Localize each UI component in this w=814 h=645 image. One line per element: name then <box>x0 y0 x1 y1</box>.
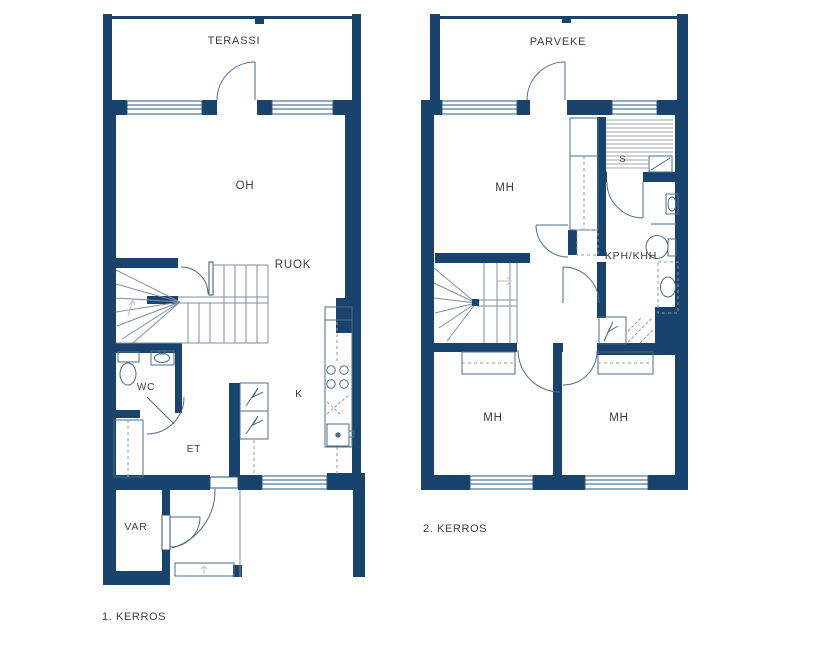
stove-burner <box>327 366 335 374</box>
floor1-stairs-arrow <box>128 300 135 316</box>
sauna-stove <box>649 156 672 172</box>
floor2-plan: PARVEKE MH S KPH/KHH MH MH 2. KERROS <box>421 14 688 535</box>
sink <box>151 351 174 365</box>
floorplan-canvas: TERASSI OH RUOK WC ET VAR K 1. KERROS <box>0 0 814 645</box>
room-label-dining: RUOK <box>275 259 311 271</box>
floor1-stairs <box>116 265 268 343</box>
closet <box>114 420 143 477</box>
floor2-caption: 2. KERROS <box>423 523 487 535</box>
stove-burner <box>340 380 348 388</box>
fridge-freezer <box>240 383 268 474</box>
floorplan-drawing: TERASSI OH RUOK WC ET VAR K 1. KERROS <box>0 0 814 645</box>
room-label-storage: VAR <box>124 521 147 533</box>
room-label-bedroom-right: MH <box>609 412 629 424</box>
room-label-bedroom-left: MH <box>483 412 503 424</box>
room-label-bedroom-top: MH <box>495 182 515 194</box>
toilet <box>118 352 139 385</box>
floor2-walls <box>421 100 688 490</box>
room-label-wc: WC <box>137 382 155 393</box>
balcony-structure <box>430 14 688 103</box>
room-label-bathroom: KPH/KHH <box>605 250 657 262</box>
water-heater <box>599 317 626 344</box>
bedroom-wardrobe-right <box>598 352 653 374</box>
room-label-kitchen: K <box>295 389 302 400</box>
terrace-structure <box>103 14 361 103</box>
floor2-stairs-arrow <box>498 277 511 285</box>
hatched-area <box>628 318 653 343</box>
room-label-living: OH <box>236 180 255 192</box>
stove-burner <box>340 366 348 374</box>
floor1-labels: TERASSI OH RUOK WC ET VAR K 1. KERROS <box>102 35 311 623</box>
room-label-sauna: S <box>619 154 626 165</box>
room-label-balcony: PARVEKE <box>530 36 587 48</box>
floor2-stairs <box>434 263 517 343</box>
floor1-caption: 1. KERROS <box>102 611 166 623</box>
sauna-benches <box>606 120 673 168</box>
bedroom-wardrobe-left <box>462 352 515 374</box>
stove-burner <box>327 380 335 388</box>
floor1-plan: TERASSI OH RUOK WC ET VAR K 1. KERROS <box>102 14 365 623</box>
room-label-terrace: TERASSI <box>208 35 261 47</box>
room-label-hall: ET <box>187 444 201 455</box>
